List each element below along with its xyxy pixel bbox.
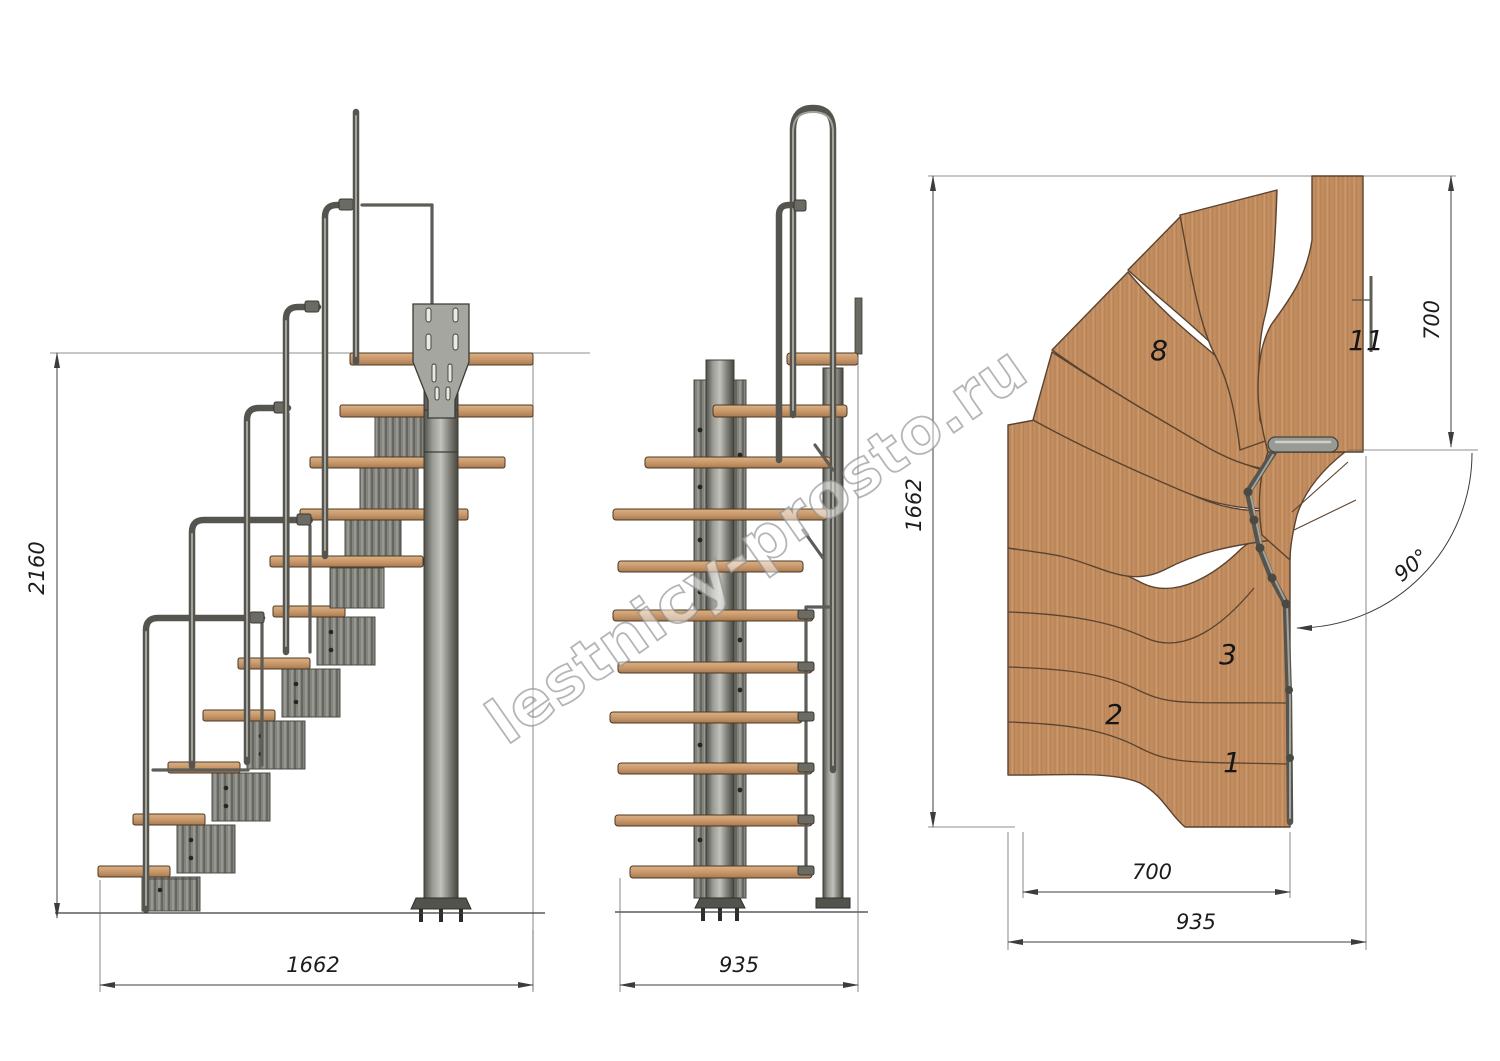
mounting-plate [413,304,469,418]
step-number-11: 11 [1348,324,1384,357]
side-column [411,304,471,922]
plan-length-dimension: 1662 [902,176,1015,827]
plan-length-label: 1662 [902,478,926,531]
watermark: lestnicy-prosto.ru [473,331,1040,759]
plan-angle-label: 90° [1389,544,1433,586]
plan-upper-depth-label: 700 [1420,300,1444,340]
side-view: 2160 1662 [25,112,590,992]
step-number-3: 3 [1219,638,1237,671]
plan-overall-width-label: 935 [1176,910,1216,934]
wall-bracket [855,298,862,354]
side-run-label: 1662 [286,953,339,977]
plan-upper-depth-dimension: 700 [1348,176,1478,450]
side-height-dimension: 2160 [25,353,57,918]
plan-corner-steps [1260,452,1345,560]
front-width-label: 935 [719,953,759,977]
plan-view: 1662 700 90° 700 935 1 2 3 8 11 [902,176,1478,950]
side-height-label: 2160 [25,541,49,594]
plan-step-width-label: 700 [1132,860,1172,884]
side-steps [98,353,533,911]
staircase-drawing: 2160 1662 [0,0,1500,1061]
plan-lower-flight [1008,533,1290,827]
plan-turn-angle: 90° [1297,453,1472,628]
step-number-1: 1 [1223,746,1241,779]
step-number-8: 8 [1150,334,1168,367]
step-number-2: 2 [1105,698,1123,731]
